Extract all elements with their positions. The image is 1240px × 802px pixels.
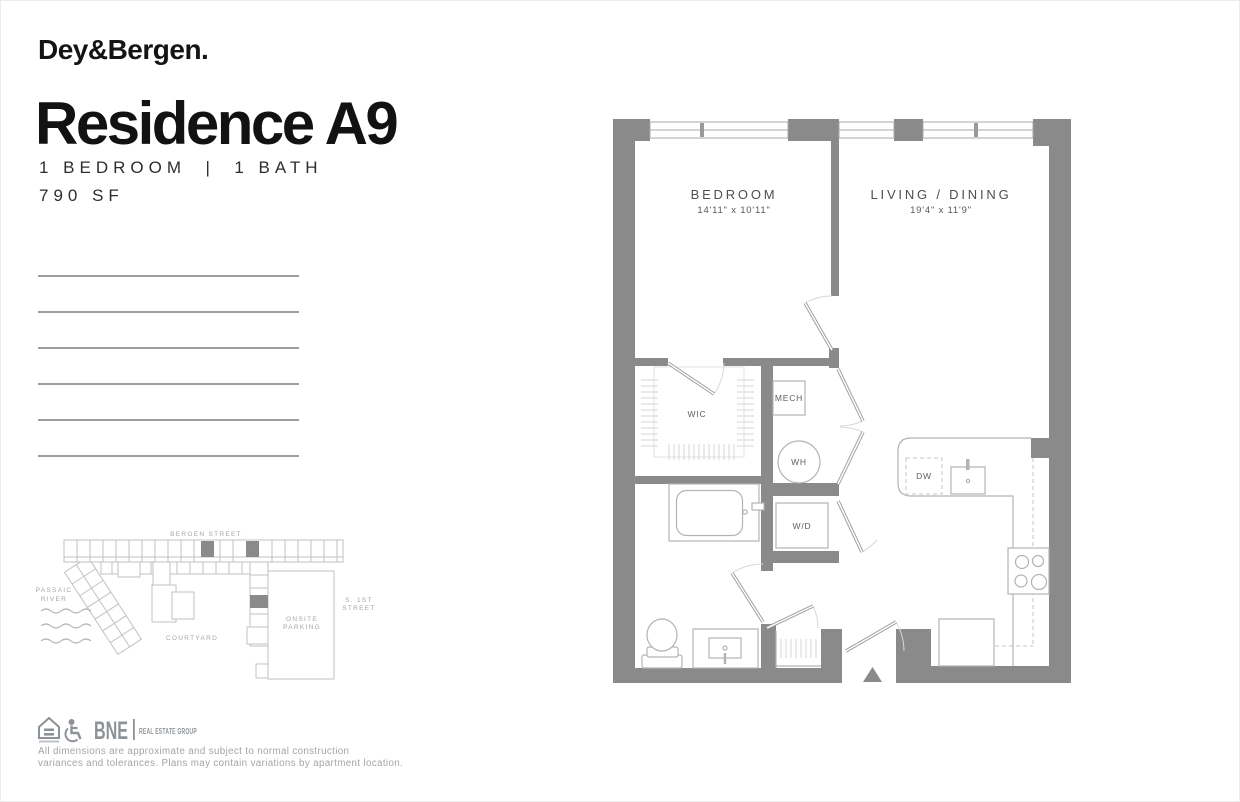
- entry-door: [846, 622, 904, 651]
- bedroom-dims: 14'11" x 10'11": [697, 205, 770, 216]
- courtyard-label: COURTYARD: [166, 635, 218, 642]
- note-line: [38, 455, 299, 457]
- floorplan-sheet: Dey&Bergen. Residence A9 1 BEDROOM | 1 B…: [0, 0, 1240, 802]
- entry-arrow-icon: [863, 667, 882, 682]
- disclaimer: All dimensions are approximate and subje…: [38, 746, 403, 769]
- s-1st-street-label: S. 1ST: [345, 597, 373, 604]
- note-line: [38, 347, 299, 349]
- stove: [1008, 548, 1049, 594]
- walls: [613, 119, 1071, 683]
- s-1st-street-label: STREET: [342, 605, 375, 612]
- disclaimer-line: All dimensions are approximate and subje…: [38, 746, 403, 758]
- wd-label: W/D: [793, 521, 812, 531]
- footer-brand: BNE REAL ESTATE GROUP: [35, 714, 235, 746]
- bne-tagline: REAL ESTATE GROUP: [139, 727, 197, 736]
- note-line: [38, 419, 299, 421]
- bathtub: [669, 484, 764, 541]
- bne-divider: [133, 719, 135, 740]
- note-line: [38, 383, 299, 385]
- note-line: [38, 275, 299, 277]
- accessibility-icon: [65, 719, 80, 741]
- washer-dryer-door: [838, 501, 877, 552]
- equal-housing-icon: [39, 718, 59, 743]
- living-dining-dims: 19'4" x 11'9": [910, 205, 972, 216]
- window: [923, 122, 1033, 138]
- note-line: [38, 311, 299, 313]
- wic-door: [668, 363, 724, 394]
- site-plan: BERGEN STREET PASSAIC RIVER COURTYARD ON…: [29, 516, 389, 694]
- entry-closet-rod: [776, 631, 821, 668]
- unit-area: 790 SF: [39, 186, 124, 206]
- floor-plan: BEDROOM 14'11" x 10'11" LIVING / DINING …: [599, 107, 1083, 693]
- bne-logo: BNE: [94, 717, 128, 745]
- window: [839, 122, 894, 138]
- bedroom-label: BEDROOM: [691, 187, 778, 202]
- window: [650, 122, 788, 138]
- living-dining-label: LIVING / DINING: [871, 187, 1012, 202]
- vanity-sink: [693, 629, 758, 668]
- bedroom-door: [805, 296, 832, 350]
- passaic-river-label: RIVER: [41, 596, 67, 603]
- kitchen-sink: [951, 459, 985, 494]
- onsite-parking-label: ONSITE: [286, 616, 318, 623]
- entry-closet-door: [767, 606, 818, 628]
- unit-summary: 1 BEDROOM | 1 BATH: [39, 158, 323, 178]
- wh-label: WH: [791, 457, 807, 467]
- mech-label: MECH: [775, 393, 803, 403]
- wic-label: WIC: [688, 409, 707, 419]
- passaic-river-label: PASSAIC: [36, 587, 73, 594]
- page-title: Residence A9: [35, 89, 396, 158]
- brand-logo: Dey&Bergen.: [38, 34, 208, 66]
- bathroom-door: [732, 564, 763, 622]
- onsite-parking-label: PARKING: [283, 624, 321, 631]
- refrigerator: [939, 619, 994, 666]
- toilet: [642, 619, 682, 668]
- dw-label: DW: [916, 471, 932, 481]
- disclaimer-line: variances and tolerances. Plans may cont…: [38, 758, 403, 770]
- bergen-street-label: BERGEN STREET: [170, 531, 242, 538]
- river-waves: [41, 609, 91, 643]
- mech-closet-doors: [838, 369, 863, 484]
